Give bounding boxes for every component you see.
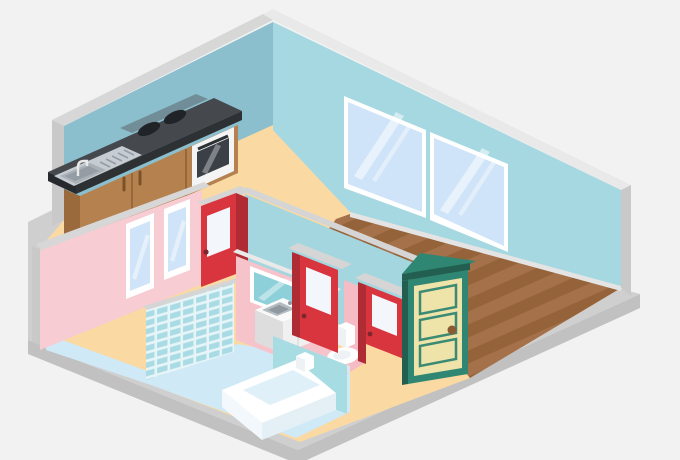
- door-jamb: [292, 252, 300, 338]
- apartment-illustration: [0, 0, 680, 460]
- door-frame-edge: [402, 280, 408, 385]
- isometric-scene: [0, 0, 680, 460]
- green-entry-door: [402, 253, 476, 385]
- door-knob: [302, 314, 307, 319]
- door-knob: [368, 332, 373, 337]
- door-jamb: [358, 282, 366, 364]
- door-knob: [448, 326, 457, 335]
- storage-box: [296, 352, 314, 372]
- wall-cut-right: [621, 185, 631, 296]
- vanity-faucet: [288, 301, 292, 305]
- door-knob: [203, 249, 208, 254]
